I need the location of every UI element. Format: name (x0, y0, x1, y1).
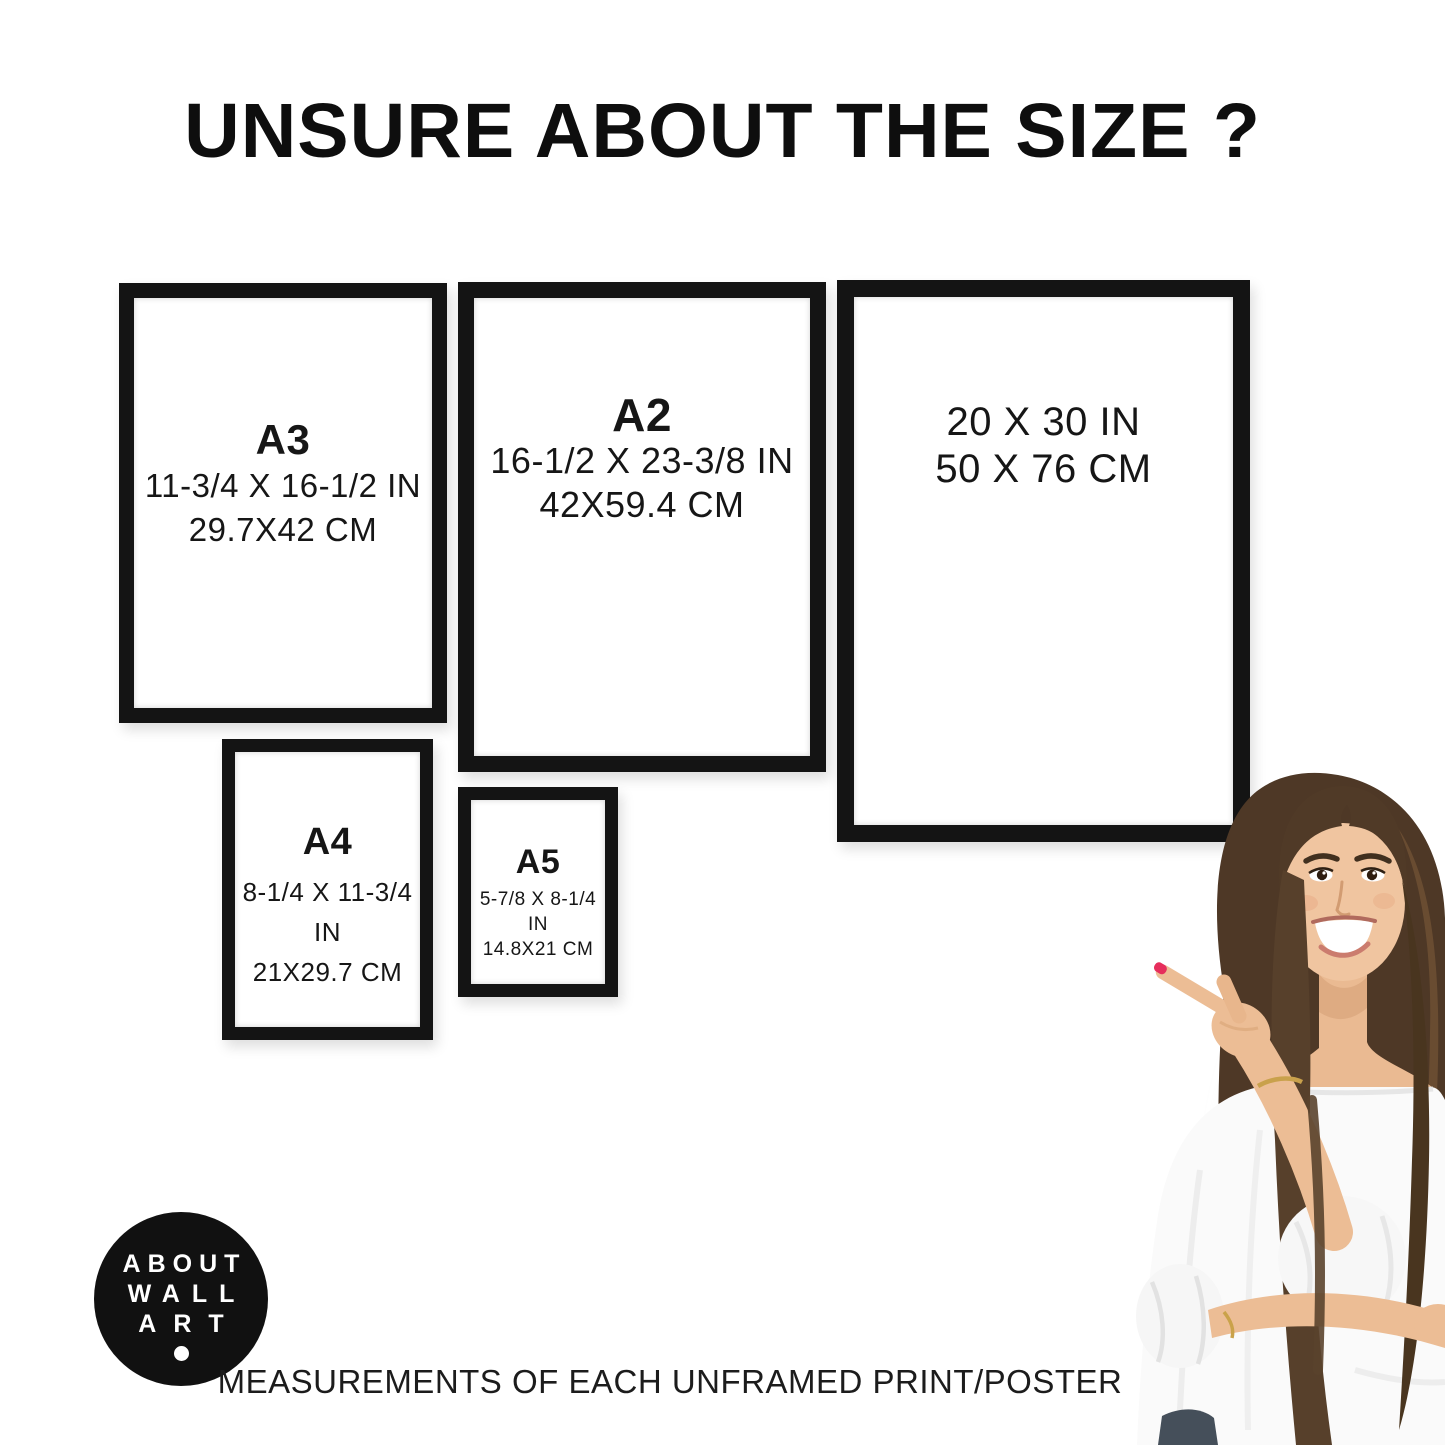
woman-jeans (1158, 1409, 1218, 1445)
frame-a3: A3 11-3/4 X 16-1/2 IN 29.7X42 CM (119, 283, 447, 723)
frame-a3-label: A3 (134, 416, 432, 464)
frame-a2-inches: 16-1/2 X 23-3/8 IN (474, 439, 810, 483)
page-title: UNSURE ABOUT THE SIZE ? (0, 86, 1445, 176)
frame-a5: A5 5-7/8 X 8-1/4 IN 14.8X21 CM (458, 787, 618, 997)
logo-word-wall: WALL (94, 1279, 268, 1309)
frame-a5-inches: 5-7/8 X 8-1/4 IN (471, 887, 605, 937)
frame-20x30-cm: 50 X 76 CM (854, 446, 1233, 493)
frame-a2-cm: 42X59.4 CM (474, 483, 810, 527)
frame-a4: A4 8-1/4 X 11-3/4 IN 21X29.7 CM (222, 739, 433, 1040)
frame-20x30-inches: 20 X 30 IN (854, 399, 1233, 446)
logo-word-art: ART (94, 1309, 268, 1339)
logo-word-about: ABOUT (94, 1249, 268, 1279)
frame-a2-text: A2 16-1/2 X 23-3/8 IN 42X59.4 CM (474, 392, 810, 527)
frame-a2: A2 16-1/2 X 23-3/8 IN 42X59.4 CM (458, 282, 826, 772)
frame-a4-label: A4 (235, 822, 420, 862)
logo-dot-icon (174, 1346, 189, 1361)
woman-photo (1100, 770, 1445, 1445)
frame-20x30-text: 20 X 30 IN 50 X 76 CM (854, 399, 1233, 493)
frame-a4-cm: 21X29.7 CM (235, 952, 420, 992)
size-guide-poster: UNSURE ABOUT THE SIZE ? A3 11-3/4 X 16-1… (0, 0, 1445, 1445)
frame-a5-label: A5 (471, 844, 605, 880)
frame-20x30: 20 X 30 IN 50 X 76 CM (837, 280, 1250, 842)
frame-a5-cm: 14.8X21 CM (471, 937, 605, 962)
frame-a4-inches: 8-1/4 X 11-3/4 IN (235, 872, 420, 952)
frame-a3-inches: 11-3/4 X 16-1/2 IN (134, 464, 432, 508)
frame-a3-cm: 29.7X42 CM (134, 508, 432, 552)
frame-a2-label: A2 (474, 392, 810, 439)
frame-a4-text: A4 8-1/4 X 11-3/4 IN 21X29.7 CM (235, 822, 420, 992)
brand-logo: ABOUT WALL ART (94, 1212, 268, 1386)
frame-a3-text: A3 11-3/4 X 16-1/2 IN 29.7X42 CM (134, 416, 432, 552)
frame-a5-text: A5 5-7/8 X 8-1/4 IN 14.8X21 CM (471, 844, 605, 962)
